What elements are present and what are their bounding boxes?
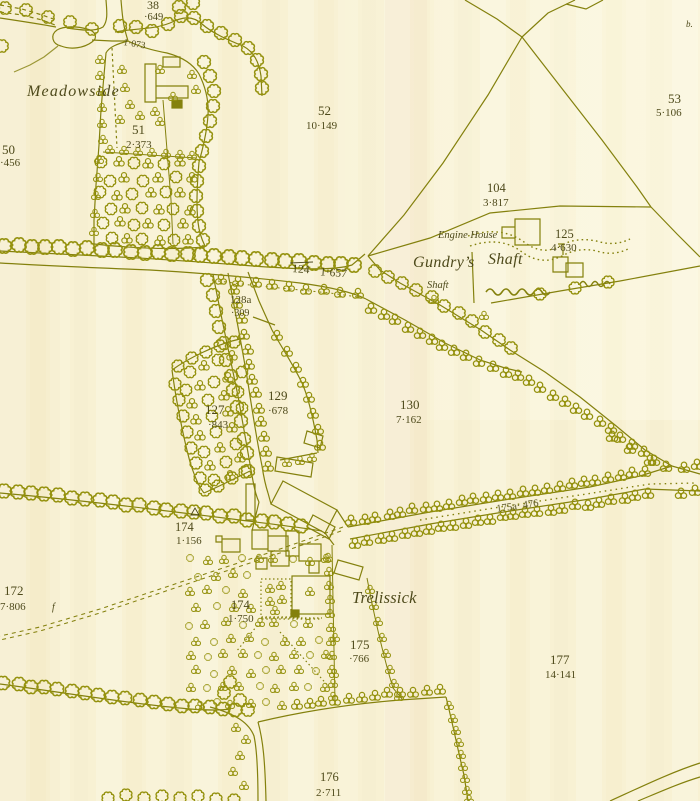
svg-text:50: 50: [2, 142, 15, 157]
svg-text:130: 130: [400, 397, 420, 412]
svg-text:53: 53: [668, 91, 681, 106]
svg-text:·456: ·456: [0, 157, 21, 169]
svg-text:124: 124: [292, 263, 310, 276]
svg-text:4·630: 4·630: [551, 242, 577, 254]
svg-text:52: 52: [318, 103, 331, 118]
svg-text:175: 175: [350, 637, 370, 652]
svg-text:Engine House: Engine House: [437, 230, 498, 241]
svg-text:3·817: 3·817: [483, 197, 509, 209]
svg-text:·766: ·766: [349, 653, 370, 665]
svg-text:b.: b.: [686, 19, 693, 29]
svg-text:Gundry’s: Gundry’s: [413, 254, 475, 271]
svg-text:174: 174: [231, 598, 251, 612]
svg-text:Meadowside: Meadowside: [26, 83, 120, 100]
svg-text:7·806: 7·806: [0, 601, 26, 613]
svg-text:2·373: 2·373: [126, 139, 152, 151]
svg-text:5·106: 5·106: [656, 107, 682, 119]
svg-text:176: 176: [320, 770, 339, 784]
svg-text:51: 51: [132, 122, 145, 137]
svg-text:Shaft: Shaft: [427, 280, 450, 291]
svg-text:177: 177: [550, 652, 570, 667]
svg-text:10·149: 10·149: [306, 120, 338, 132]
svg-text:1·657: 1·657: [320, 266, 348, 280]
svg-text:7·162: 7·162: [396, 414, 422, 426]
svg-text:38: 38: [147, 0, 159, 12]
svg-text:·843: ·843: [208, 419, 229, 431]
svg-text:·649: ·649: [144, 12, 163, 23]
svg-text:129: 129: [268, 388, 288, 403]
svg-text:2·711: 2·711: [316, 787, 341, 799]
svg-text:Trelissick: Trelissick: [352, 588, 417, 607]
svg-text:1·750: 1·750: [228, 613, 254, 625]
svg-text:·309: ·309: [231, 308, 249, 319]
svg-text:127: 127: [205, 402, 225, 417]
svg-text:·678: ·678: [268, 405, 289, 417]
svg-text:174: 174: [175, 520, 195, 534]
svg-text:Shaft: Shaft: [488, 251, 523, 268]
svg-text:1·156: 1·156: [176, 535, 202, 547]
svg-text:125: 125: [555, 227, 574, 241]
svg-text:128a: 128a: [230, 294, 252, 306]
svg-text:14·141: 14·141: [545, 669, 576, 681]
svg-text:104: 104: [487, 181, 507, 195]
svg-text:172: 172: [4, 583, 24, 598]
